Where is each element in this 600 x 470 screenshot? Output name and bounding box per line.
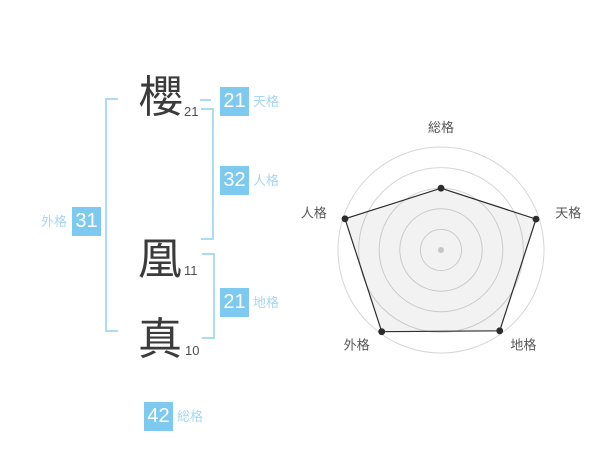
radar-value-polygon bbox=[345, 188, 536, 332]
radar-axis-label: 地格 bbox=[510, 338, 536, 353]
radar-center-dot bbox=[438, 247, 444, 253]
radar-axis-label: 総格 bbox=[428, 120, 454, 135]
radar-axis-label: 人格 bbox=[301, 206, 327, 221]
radar-vertex-dot bbox=[342, 215, 349, 222]
radar-vertex-dot bbox=[378, 328, 385, 335]
radar-vertex-dot bbox=[496, 327, 503, 334]
radar-axis-label: 外格 bbox=[344, 338, 370, 353]
radar-axis-label: 天格 bbox=[555, 206, 581, 221]
radar-vertex-dot bbox=[438, 185, 445, 192]
name-analysis-panel: 櫻 21 凰 11 真 10 21 天格 32 人格 21 地格 31 外格 4… bbox=[0, 0, 600, 470]
radar-chart: 総格天格地格外格人格 bbox=[0, 0, 600, 470]
radar-vertex-dot bbox=[533, 216, 540, 223]
